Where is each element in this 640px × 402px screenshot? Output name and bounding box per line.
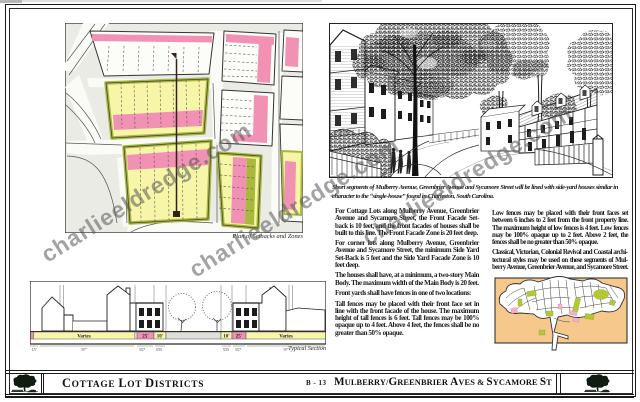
svg-text:557: 557 bbox=[139, 347, 145, 352]
svg-text:555: 555 bbox=[156, 347, 162, 352]
svg-text:10': 10' bbox=[157, 335, 164, 340]
svg-text:Varies: Varies bbox=[77, 335, 90, 340]
svg-text:97': 97' bbox=[82, 347, 87, 352]
svg-text:15': 15' bbox=[32, 347, 37, 352]
svg-text:25': 25' bbox=[142, 335, 149, 340]
svg-text:Varies: Varies bbox=[279, 335, 292, 340]
svg-text:25': 25' bbox=[236, 335, 243, 340]
svg-text:10': 10' bbox=[223, 335, 230, 340]
